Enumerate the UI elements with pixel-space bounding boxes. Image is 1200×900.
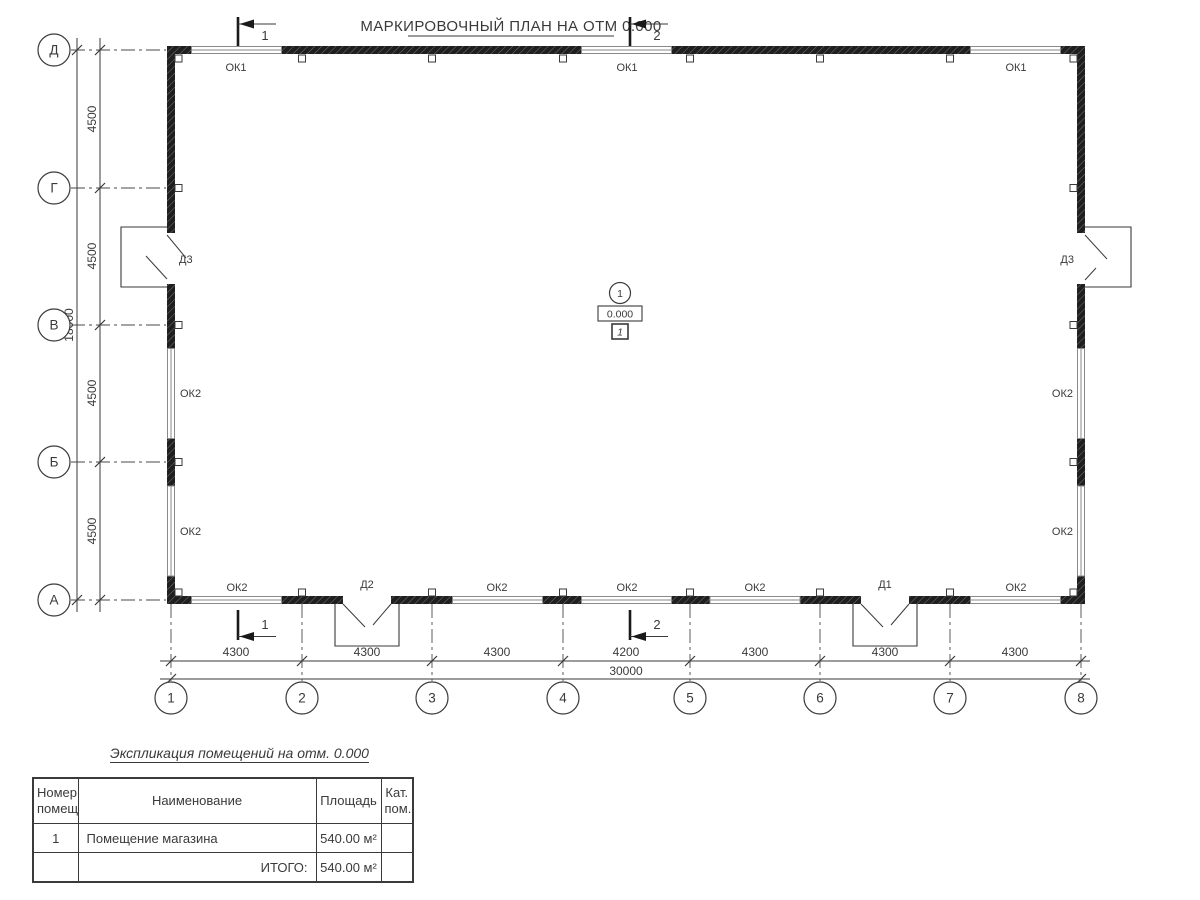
axis-lines bbox=[71, 50, 1081, 681]
section-marker-1-top: 1 bbox=[238, 17, 276, 46]
door-tag-d3-left: Д3 bbox=[179, 254, 193, 266]
col-header-area: Площадь bbox=[316, 778, 381, 824]
plan-title: МАРКИРОВОЧНЫЙ ПЛАН НА ОТМ 0.000 bbox=[360, 17, 661, 35]
room-category-cell bbox=[381, 824, 413, 853]
table-row: ИТОГО: 540.00 м² bbox=[33, 853, 413, 883]
axis-number: 3 bbox=[428, 691, 436, 706]
col-header-category: Кат. пом. bbox=[381, 778, 413, 824]
room-schedule: Экспликация помещений на отм. 0.000 Номе… bbox=[32, 745, 412, 883]
total-label-cell: ИТОГО: bbox=[78, 853, 316, 883]
axis-number: 8 bbox=[1077, 691, 1085, 706]
dim-bay: 4500 bbox=[85, 517, 99, 544]
elevation-value: 0.000 bbox=[607, 309, 633, 321]
total-number-cell bbox=[33, 853, 78, 883]
door-tag-d3-right: Д3 bbox=[1060, 254, 1074, 266]
door-vestibule-d1 bbox=[853, 604, 917, 646]
door-vestibule-d2 bbox=[335, 604, 399, 646]
total-category-cell bbox=[381, 853, 413, 883]
window-tag-ok2: ОК2 bbox=[180, 388, 201, 400]
axis-number: 4 bbox=[559, 691, 567, 706]
window-tag-ok2: ОК2 bbox=[180, 526, 201, 538]
door-tag-d2: Д2 bbox=[360, 579, 374, 591]
dim-bay: 4500 bbox=[85, 379, 99, 406]
axis-letter: Б bbox=[50, 455, 59, 470]
total-area-cell: 540.00 м² bbox=[316, 853, 381, 883]
axis-letter: Г bbox=[50, 181, 58, 196]
floor-plan-drawing: МАРКИРОВОЧНЫЙ ПЛАН НА ОТМ 0.000 bbox=[0, 0, 1200, 738]
section-marker-2-bottom: 2 bbox=[630, 610, 668, 641]
room-marks: 1 0.000 1 bbox=[598, 283, 642, 340]
axis-letter: В bbox=[49, 318, 58, 333]
exterior-walls bbox=[167, 46, 1085, 604]
dim-bay: 4300 bbox=[1002, 645, 1029, 659]
dim-bay: 4500 bbox=[85, 105, 99, 132]
room-number-value: 1 bbox=[617, 327, 623, 339]
axis-letter: А bbox=[49, 593, 58, 608]
window-labels: ОК1 ОК1 ОК1 ОК2 ОК2 ОК2 ОК2 ОК2 ОК2 ОК2 … bbox=[180, 62, 1073, 594]
window-tag-ok2: ОК2 bbox=[1005, 582, 1026, 594]
axis-letter: Д bbox=[49, 43, 58, 58]
col-header-name: Наименование bbox=[78, 778, 316, 824]
table-row: 1 Помещение магазина 540.00 м² bbox=[33, 824, 413, 853]
door-vestibule-right bbox=[1085, 227, 1131, 287]
room-name-cell: Помещение магазина bbox=[78, 824, 316, 853]
door-tag-d1: Д1 bbox=[878, 579, 892, 591]
window-tag-ok2: ОК2 bbox=[486, 582, 507, 594]
window-tag-ok2: ОК2 bbox=[1052, 388, 1073, 400]
column-markers bbox=[175, 55, 1077, 596]
dim-bay: 4300 bbox=[742, 645, 769, 659]
room-axis-number: 1 bbox=[617, 288, 623, 300]
bottom-dimensions: 4300 4300 4300 4200 4300 4300 4300 30000 bbox=[160, 645, 1090, 684]
dim-bay: 4500 bbox=[85, 242, 99, 269]
dim-bay: 4300 bbox=[354, 645, 381, 659]
room-area-cell: 540.00 м² bbox=[316, 824, 381, 853]
window-tag-ok1: ОК1 bbox=[616, 62, 637, 74]
axis-number: 1 bbox=[167, 691, 175, 706]
axis-number: 7 bbox=[946, 691, 954, 706]
window-tag-ok1: ОК1 bbox=[225, 62, 246, 74]
room-schedule-table: Номер помещ. Наименование Площадь Кат. п… bbox=[32, 777, 414, 883]
dim-bay: 4200 bbox=[613, 645, 640, 659]
axis-number: 2 bbox=[298, 691, 306, 706]
horizontal-axis-bubbles: 1 2 3 4 5 6 7 8 bbox=[155, 682, 1097, 714]
section-label: 1 bbox=[261, 28, 268, 43]
window-tag-ok2: ОК2 bbox=[744, 582, 765, 594]
window-tag-ok2: ОК2 bbox=[616, 582, 637, 594]
vertical-axis-bubbles: Д Г В Б А bbox=[38, 34, 70, 616]
col-header-room-number: Номер помещ. bbox=[33, 778, 78, 824]
dim-bay: 4300 bbox=[223, 645, 250, 659]
section-label: 2 bbox=[653, 28, 660, 43]
section-label: 1 bbox=[261, 617, 268, 632]
dim-total-width: 30000 bbox=[609, 664, 643, 678]
axis-number: 5 bbox=[686, 691, 694, 706]
drawing-sheet: МАРКИРОВОЧНЫЙ ПЛАН НА ОТМ 0.000 bbox=[0, 0, 1200, 900]
room-number-cell: 1 bbox=[33, 824, 78, 853]
axis-number: 6 bbox=[816, 691, 824, 706]
dim-bay: 4300 bbox=[484, 645, 511, 659]
door-vestibule-left bbox=[121, 227, 167, 287]
section-marker-1-bottom: 1 bbox=[238, 610, 276, 641]
window-tag-ok2: ОК2 bbox=[1052, 526, 1073, 538]
windows bbox=[168, 47, 1085, 604]
window-tag-ok2: ОК2 bbox=[226, 582, 247, 594]
dim-bay: 4300 bbox=[872, 645, 899, 659]
section-label: 2 bbox=[653, 617, 660, 632]
room-schedule-title: Экспликация помещений на отм. 0.000 bbox=[110, 745, 369, 763]
window-tag-ok1: ОК1 bbox=[1005, 62, 1026, 74]
